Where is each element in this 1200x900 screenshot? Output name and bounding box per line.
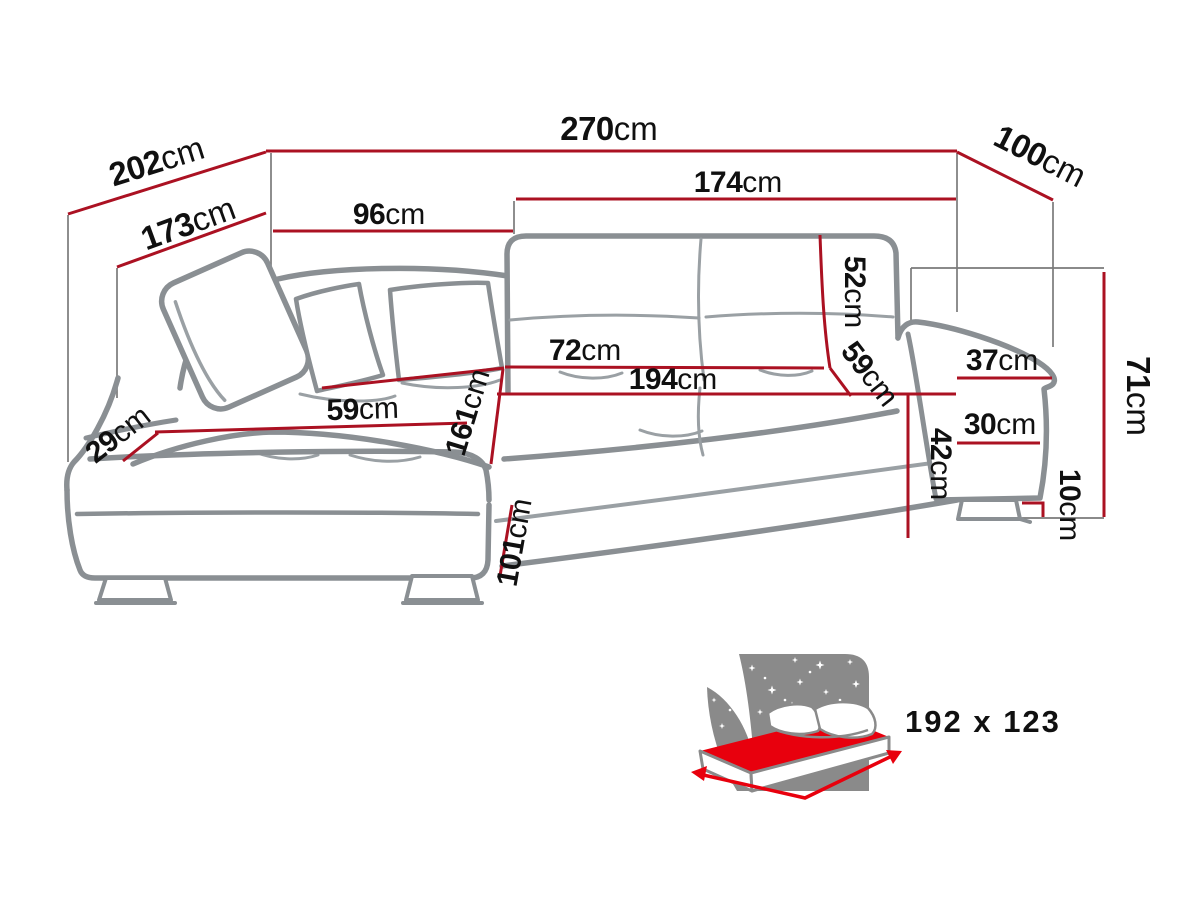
sofa-leg	[406, 576, 478, 600]
dim-label-100: 100cm	[988, 117, 1092, 194]
dim-label-101: 101cm	[491, 496, 539, 589]
dim-label-59-back: 59cm	[834, 335, 905, 412]
dim-label-194: 194cm	[629, 363, 718, 396]
diagram-canvas: 202cm 270cm 100cm 173cm 96cm 174cm 52cm …	[0, 0, 1200, 900]
sofa-illustration	[67, 236, 1055, 603]
dim-label-173: 173cm	[136, 189, 240, 257]
dim-label-96: 96cm	[353, 198, 425, 231]
dim-label-202: 202cm	[104, 129, 208, 194]
sofa-legs	[96, 500, 1030, 603]
seat-tuft	[760, 370, 812, 375]
dim-line-10	[1022, 503, 1043, 517]
dim-label-59-chaise: 59cm	[326, 392, 399, 428]
seat-tuft	[350, 455, 420, 461]
sofa-leg	[99, 578, 171, 600]
arrowhead-left	[691, 766, 707, 781]
sofa-leg-base	[1020, 519, 1030, 522]
seat-seam	[698, 388, 703, 455]
pillow	[296, 284, 383, 391]
dim-label-52: 52cm	[838, 256, 871, 328]
front-band-bottom	[67, 490, 489, 578]
dim-label-42: 42cm	[924, 428, 957, 500]
bed-pillow	[815, 702, 875, 737]
dim-label-30: 30cm	[964, 408, 1036, 441]
dim-label-37: 37cm	[966, 344, 1038, 377]
pillow	[390, 283, 502, 380]
sofa-dimension-diagram: 202cm 270cm 100cm 173cm 96cm 174cm 52cm …	[0, 0, 1200, 900]
front-band-seam	[77, 513, 478, 515]
dim-label-161: 161cm	[439, 365, 496, 459]
sofa-leg	[958, 500, 1020, 519]
dim-label-71: 71cm	[1120, 356, 1157, 436]
sleeping-area-label: 192 x 123	[905, 704, 1061, 739]
dim-label-174: 174cm	[694, 166, 783, 199]
dim-label-270: 270cm	[560, 110, 658, 147]
sleep-function-icon: 192 x 123	[691, 654, 1061, 798]
dim-label-10: 10cm	[1053, 469, 1086, 541]
seat-tuft	[640, 430, 702, 436]
dim-label-72: 72cm	[549, 334, 621, 367]
